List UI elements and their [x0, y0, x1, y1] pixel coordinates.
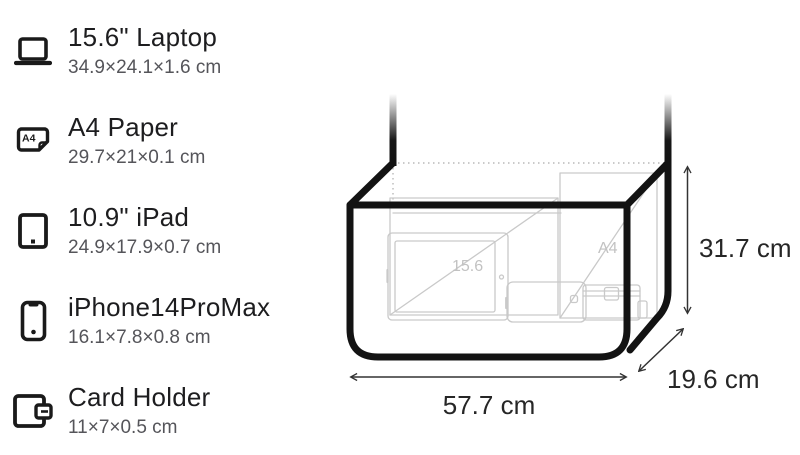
- bag-3d-drawing: 15.6 A4 31.7 cm 57.7 cm 19.6 cm: [0, 0, 800, 455]
- laptop-outline: [390, 198, 561, 315]
- iphone-outline: [506, 282, 586, 322]
- bag-strap-left: [390, 94, 397, 166]
- bag-capacity-diagram: 15.6" Laptop 34.9×24.1×1.6 cm A4 A4 Pape…: [0, 0, 800, 455]
- card-holder-outline: [583, 285, 647, 320]
- a4-size-label: A4: [598, 240, 618, 257]
- height-label: 31.7 cm: [699, 233, 792, 263]
- depth-label: 19.6 cm: [667, 364, 760, 394]
- bag-outline: [350, 163, 668, 357]
- bag-hidden-edges: [393, 163, 668, 203]
- width-label: 57.7 cm: [443, 390, 536, 420]
- laptop-size-label: 15.6: [452, 258, 483, 275]
- bag-strap-right: [665, 94, 672, 166]
